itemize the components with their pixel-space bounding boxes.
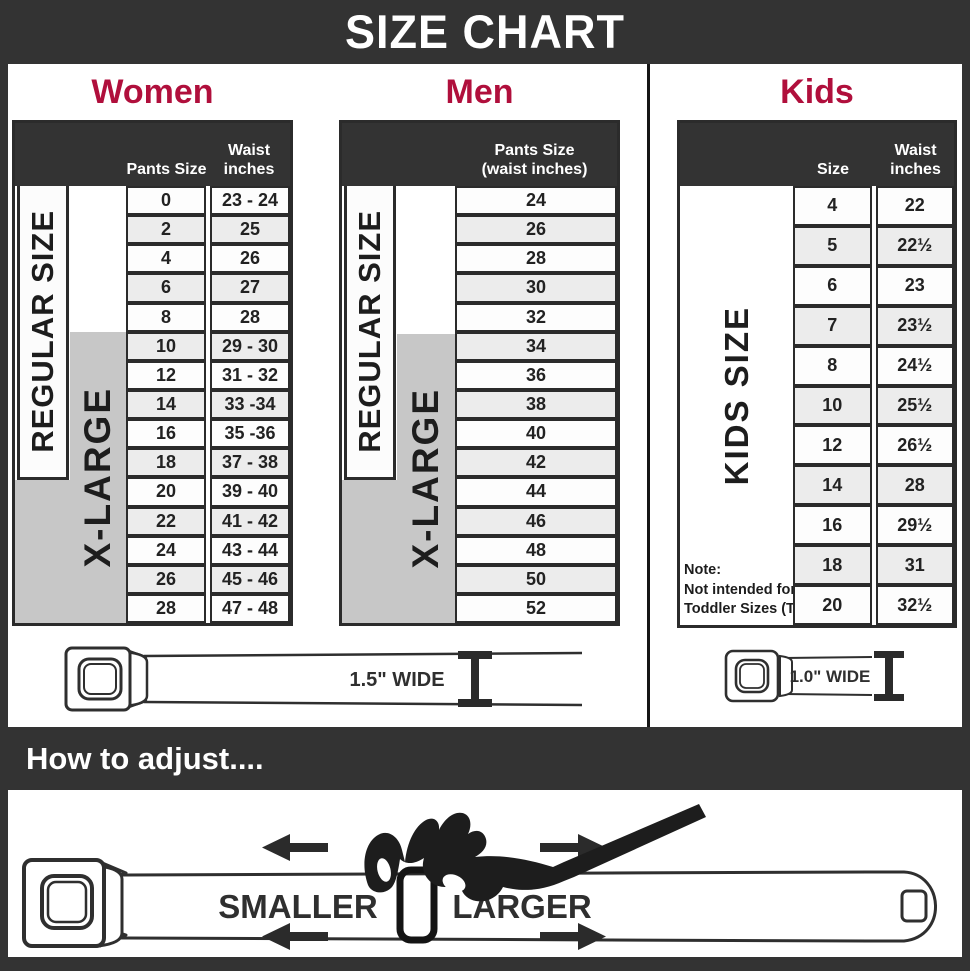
table-row: 0 23 - 24 [126,186,290,215]
pants-size-cell: 36 [455,361,617,390]
waist-inches-cell: 28 [876,465,955,505]
table-row: 26 [455,215,617,244]
waist-inches-cell: 27 [210,273,290,302]
kid-size-cell: 5 [793,226,872,266]
belt-slider [400,870,434,940]
men-xlarge-label: X-LARGE [405,388,447,569]
kids-waist-header: Waist inches [877,142,954,180]
pants-size-cell: 24 [455,186,617,215]
pants-size-cell: 26 [455,215,617,244]
width-marker-icon [874,651,904,701]
pants-size-cell: 20 [126,477,206,506]
table-row: 4 22 [793,186,954,226]
pants-size-cell: 14 [126,390,206,419]
table-row: 28 47 - 48 [126,594,290,623]
table-row: 18 37 - 38 [126,448,290,477]
adjust-belt-illustration: SMALLER LARGER [8,790,962,957]
pants-size-cell: 24 [126,536,206,565]
table-row: 24 [455,186,617,215]
pants-size-cell: 28 [126,594,206,623]
page-title: SIZE CHART [345,5,625,60]
table-row: 26 45 - 46 [126,565,290,594]
kid-size-cell: 18 [793,545,872,585]
waist-inches-cell: 29 - 30 [210,332,290,361]
waist-inches-cell: 45 - 46 [210,565,290,594]
kids-heading: Kids [677,72,957,112]
waist-inches-cell: 37 - 38 [210,448,290,477]
men-header-line2: (waist inches) [455,161,614,180]
kid-size-cell: 8 [793,346,872,386]
pants-size-cell: 2 [126,215,206,244]
women-waist-header: Waist inches [209,142,289,180]
waist-inches-cell: 26½ [876,425,955,465]
table-row: 4 26 [126,244,290,273]
table-row: 10 25½ [793,386,954,426]
panel-divider [647,64,650,727]
pants-size-cell: 4 [126,244,206,273]
how-to-adjust-band: How to adjust.... [0,727,970,790]
pants-size-cell: 38 [455,390,617,419]
waist-inches-cell: 32½ [876,585,955,625]
waist-inches-cell: 24½ [876,346,955,386]
pants-size-cell: 48 [455,536,617,565]
waist-inches-cell: 22 [876,186,955,226]
pants-size-cell: 8 [126,303,206,332]
pants-size-cell: 52 [455,594,617,623]
kids-size-header: Size [791,161,875,180]
waist-inches-cell: 28 [210,303,290,332]
men-table-body: X-LARGE REGULAR SIZE 24 26 28 [342,186,617,623]
table-row: 6 27 [126,273,290,302]
men-pants-size-header: Pants Size (waist inches) [455,142,614,180]
waist-inches-cell: 23 [876,266,955,306]
kid-size-cell: 10 [793,386,872,426]
women-heading: Women [12,72,293,112]
table-row: 14 28 [793,465,954,505]
kid-size-cell: 4 [793,186,872,226]
table-row: 16 35 -36 [126,419,290,448]
table-row: 28 [455,244,617,273]
seatbelt-buckle-icon [66,648,147,710]
kids-table-header: Size Waist inches [680,123,954,186]
waist-inches-cell: 23½ [876,306,955,346]
women-xlarge-band-extension [15,480,70,623]
pants-size-cell: 22 [126,507,206,536]
waist-inches-cell: 39 - 40 [210,477,290,506]
table-row: 12 31 - 32 [126,361,290,390]
table-row: 18 31 [793,545,954,585]
smaller-label: SMALLER [218,888,378,925]
pants-size-cell: 26 [126,565,206,594]
belt-tip [864,872,936,941]
kids-note: Note: Not intended for Toddler Sizes (T) [684,561,800,620]
women-xlarge-label: X-LARGE [77,387,119,568]
waist-inches-cell: 31 [876,545,955,585]
women-regular-label: REGULAR SIZE [25,210,61,453]
waist-inches-cell: 22½ [876,226,955,266]
women-rows: 0 23 - 24 2 25 4 26 6 2 [126,186,290,623]
waist-inches-cell: 26 [210,244,290,273]
men-rows: 24 26 28 30 32 [455,186,617,623]
pants-size-cell: 46 [455,507,617,536]
title-band: SIZE CHART [0,0,970,64]
table-row: 22 41 - 42 [126,507,290,536]
pants-size-cell: 42 [455,448,617,477]
women-table-body: X-LARGE REGULAR SIZE 0 23 - 24 2 25 [15,186,290,623]
pants-size-cell: 6 [126,273,206,302]
men-regular-label: REGULAR SIZE [352,210,388,453]
kids-note-line2: Not intended for [684,581,800,601]
table-row: 2 25 [126,215,290,244]
kids-rows: 4 22 5 22½ 6 23 7 23½ [793,186,954,625]
kid-size-cell: 12 [793,425,872,465]
table-row: 6 23 [793,266,954,306]
pants-size-cell: 34 [455,332,617,361]
table-row: 44 [455,477,617,506]
waist-inches-cell: 25 [210,215,290,244]
table-row: 32 [455,303,617,332]
adult-belt-width-label: 1.5" WIDE [349,669,444,691]
men-table-header: Pants Size (waist inches) [342,123,617,186]
men-header-line1: Pants Size [455,142,614,161]
pants-size-cell: 32 [455,303,617,332]
table-row: 10 29 - 30 [126,332,290,361]
table-row: 16 29½ [793,505,954,545]
kid-size-cell: 16 [793,505,872,545]
width-marker-icon [458,651,492,707]
size-chart-page: SIZE CHART Women Men Kids Pants Size Wai… [0,0,970,971]
pants-size-cell: 18 [126,448,206,477]
men-size-table: Pants Size (waist inches) X-LARGE REGULA… [339,120,620,626]
kids-belt-illustration: 1.0" WIDE [722,648,928,704]
pants-size-cell: 50 [455,565,617,594]
table-row: 8 24½ [793,346,954,386]
waist-inches-cell: 47 - 48 [210,594,290,623]
table-row: 12 26½ [793,425,954,465]
kids-note-line3: Toddler Sizes (T) [684,600,800,620]
table-row: 14 33 -34 [126,390,290,419]
pants-size-cell: 12 [126,361,206,390]
women-xlarge-band: X-LARGE [70,332,126,623]
pants-size-cell: 16 [126,419,206,448]
table-row: 52 [455,594,617,623]
kids-belt-width-label: 1.0" WIDE [790,667,871,686]
table-row: 40 [455,419,617,448]
table-row: 34 [455,332,617,361]
table-row: 50 [455,565,617,594]
pants-size-cell: 30 [455,273,617,302]
kid-size-cell: 20 [793,585,872,625]
kid-size-cell: 14 [793,465,872,505]
waist-inches-cell: 43 - 44 [210,536,290,565]
table-row: 36 [455,361,617,390]
kid-size-cell: 6 [793,266,872,306]
adult-belt-illustration: 1.5" WIDE [60,640,590,718]
pants-size-cell: 10 [126,332,206,361]
seatbelt-buckle-icon [24,860,126,946]
seatbelt-buckle-icon [726,651,778,701]
waist-inches-cell: 25½ [876,386,955,426]
women-table-header: Pants Size Waist inches [15,123,290,186]
kids-size-label: KIDS SIZE [718,306,756,485]
table-row: 20 39 - 40 [126,477,290,506]
men-xlarge-band-extension [342,480,397,623]
how-to-adjust-heading: How to adjust.... [26,741,264,777]
women-size-table: Pants Size Waist inches X-LARGE REGULAR … [12,120,293,626]
kids-size-band: KIDS SIZE [680,226,793,566]
table-row: 38 [455,390,617,419]
kid-size-cell: 7 [793,306,872,346]
pants-size-cell: 28 [455,244,617,273]
waist-inches-cell: 31 - 32 [210,361,290,390]
table-row: 30 [455,273,617,302]
kids-table-body: KIDS SIZE Note: Not intended for Toddler… [680,186,954,625]
table-row: 24 43 - 44 [126,536,290,565]
waist-inches-cell: 29½ [876,505,955,545]
waist-inches-cell: 41 - 42 [210,507,290,536]
pants-size-cell: 0 [126,186,206,215]
table-row: 42 [455,448,617,477]
table-row: 46 [455,507,617,536]
women-pants-size-header: Pants Size [125,161,208,180]
table-row: 5 22½ [793,226,954,266]
adjust-illustration-panel: SMALLER LARGER [8,790,962,957]
waist-inches-cell: 23 - 24 [210,186,290,215]
table-row: 8 28 [126,303,290,332]
men-xlarge-band: X-LARGE [397,334,455,623]
kids-size-table: Size Waist inches KIDS SIZE Note: Not in… [677,120,957,628]
table-row: 48 [455,536,617,565]
pants-size-cell: 44 [455,477,617,506]
table-row: 20 32½ [793,585,954,625]
women-regular-band: REGULAR SIZE [17,186,69,480]
waist-inches-cell: 33 -34 [210,390,290,419]
table-row: 7 23½ [793,306,954,346]
pants-size-cell: 40 [455,419,617,448]
waist-inches-cell: 35 -36 [210,419,290,448]
men-heading: Men [339,72,620,112]
kids-note-line1: Note: [684,561,800,581]
men-regular-band: REGULAR SIZE [344,186,396,480]
